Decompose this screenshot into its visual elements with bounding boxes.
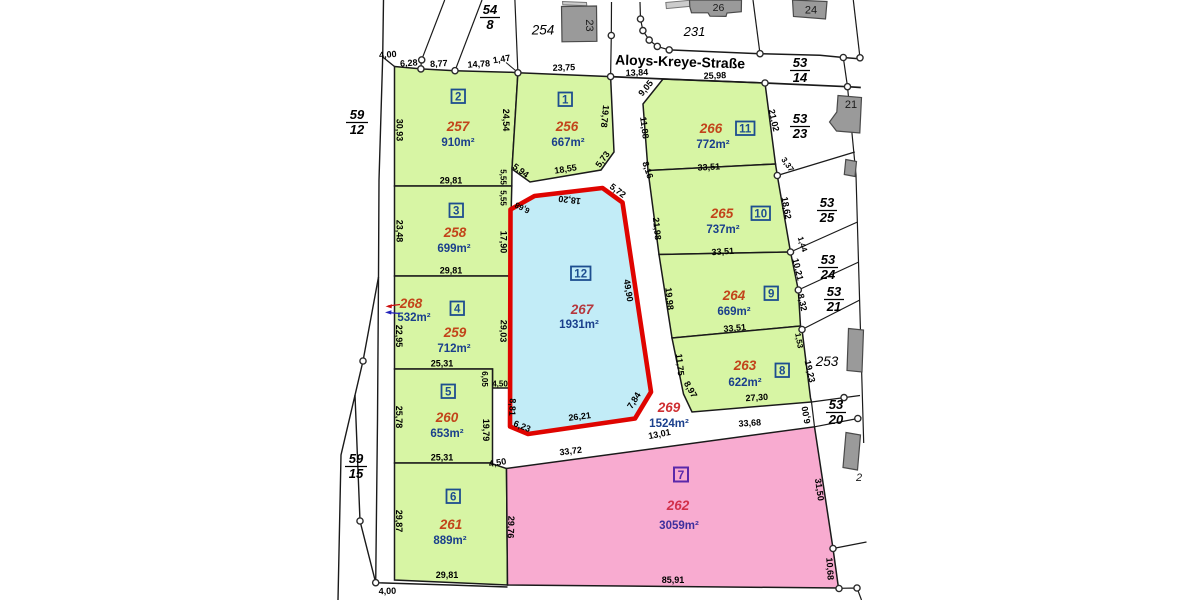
svg-text:12: 12: [350, 122, 365, 137]
svg-text:8: 8: [779, 366, 786, 378]
svg-text:264: 264: [722, 288, 746, 303]
svg-text:19,79: 19,79: [481, 419, 491, 442]
svg-text:910m²: 910m²: [441, 137, 474, 149]
svg-text:53: 53: [821, 252, 836, 267]
svg-text:669m²: 669m²: [717, 306, 750, 318]
svg-text:30,93: 30,93: [395, 119, 405, 142]
svg-text:24: 24: [820, 267, 836, 282]
svg-text:5,55: 5,55: [499, 190, 508, 206]
svg-text:54: 54: [483, 2, 498, 17]
svg-text:33,51: 33,51: [723, 322, 746, 334]
svg-text:4,00: 4,00: [378, 586, 396, 597]
svg-text:29,81: 29,81: [440, 266, 463, 276]
svg-text:3059m²: 3059m²: [659, 520, 699, 532]
svg-text:10,68: 10,68: [824, 557, 836, 580]
svg-text:712m²: 712m²: [437, 343, 470, 355]
svg-text:254: 254: [531, 23, 555, 38]
svg-text:10: 10: [754, 209, 767, 221]
svg-text:23,75: 23,75: [552, 62, 575, 73]
svg-text:15: 15: [349, 466, 364, 481]
svg-text:2: 2: [855, 472, 862, 484]
svg-text:6,05: 6,05: [480, 371, 489, 387]
svg-text:3: 3: [453, 206, 459, 218]
svg-text:22,95: 22,95: [394, 325, 404, 348]
svg-text:231: 231: [683, 24, 706, 39]
svg-text:26: 26: [713, 2, 725, 14]
svg-text:25,78: 25,78: [394, 406, 404, 429]
svg-text:259: 259: [443, 325, 467, 340]
svg-text:9: 9: [768, 289, 774, 301]
svg-text:21: 21: [826, 299, 841, 314]
svg-text:12: 12: [574, 269, 587, 281]
svg-text:53: 53: [793, 111, 808, 126]
svg-text:889m²: 889m²: [433, 535, 466, 547]
svg-text:266: 266: [699, 121, 723, 136]
svg-text:33,51: 33,51: [697, 161, 720, 172]
svg-text:17,90: 17,90: [499, 231, 509, 254]
svg-text:27,30: 27,30: [745, 392, 768, 404]
svg-text:262: 262: [666, 498, 690, 513]
svg-text:53: 53: [820, 195, 835, 210]
svg-text:257: 257: [446, 119, 471, 134]
svg-text:11: 11: [739, 124, 752, 136]
svg-text:699m²: 699m²: [437, 243, 470, 255]
svg-text:29,87: 29,87: [394, 510, 404, 533]
svg-text:8,77: 8,77: [430, 58, 448, 69]
svg-text:737m²: 737m²: [706, 224, 739, 236]
svg-text:21: 21: [845, 99, 857, 111]
svg-text:268: 268: [399, 296, 423, 311]
svg-text:5,55: 5,55: [499, 169, 508, 185]
svg-text:265: 265: [710, 206, 734, 221]
svg-text:6,28: 6,28: [400, 57, 418, 68]
svg-text:2: 2: [455, 92, 461, 104]
svg-text:6: 6: [450, 492, 456, 504]
svg-text:4: 4: [454, 304, 461, 316]
svg-text:14: 14: [793, 70, 808, 85]
svg-text:653m²: 653m²: [430, 428, 463, 440]
svg-text:267: 267: [570, 302, 595, 317]
svg-text:20: 20: [828, 412, 844, 427]
svg-text:5: 5: [445, 387, 452, 399]
svg-text:7: 7: [678, 468, 685, 482]
svg-text:260: 260: [435, 410, 459, 425]
svg-text:23: 23: [792, 126, 808, 141]
svg-text:59: 59: [349, 451, 364, 466]
svg-text:29,76: 29,76: [506, 516, 517, 539]
svg-text:33,51: 33,51: [711, 246, 734, 258]
svg-text:25: 25: [819, 210, 835, 225]
svg-text:261: 261: [439, 517, 463, 532]
svg-text:4,50: 4,50: [492, 380, 508, 389]
svg-text:25,31: 25,31: [431, 359, 454, 369]
svg-text:33,68: 33,68: [738, 417, 761, 429]
svg-text:25,31: 25,31: [431, 453, 454, 463]
svg-text:667m²: 667m²: [551, 137, 584, 149]
svg-text:24,54: 24,54: [501, 109, 511, 132]
svg-text:622m²: 622m²: [728, 377, 761, 389]
svg-text:14,78: 14,78: [467, 58, 490, 70]
svg-text:23,48: 23,48: [395, 220, 405, 243]
svg-text:8: 8: [486, 17, 494, 32]
svg-text:23: 23: [583, 19, 595, 31]
svg-text:772m²: 772m²: [696, 139, 729, 151]
svg-text:85,91: 85,91: [662, 575, 685, 585]
svg-text:8,81: 8,81: [507, 398, 518, 416]
svg-text:532m²: 532m²: [397, 312, 430, 324]
svg-text:59: 59: [350, 107, 365, 122]
svg-text:29,81: 29,81: [440, 176, 463, 186]
svg-text:25,98: 25,98: [703, 70, 726, 81]
svg-text:1524m²: 1524m²: [649, 418, 689, 430]
svg-text:1: 1: [562, 95, 569, 107]
svg-text:256: 256: [555, 119, 579, 134]
svg-text:53: 53: [827, 284, 842, 299]
svg-text:1931m²: 1931m²: [559, 319, 599, 331]
svg-text:253: 253: [815, 354, 839, 369]
svg-text:53: 53: [829, 397, 844, 412]
svg-text:24: 24: [805, 5, 817, 17]
svg-text:13,84: 13,84: [625, 67, 648, 78]
svg-text:29,81: 29,81: [436, 570, 459, 580]
svg-text:29,03: 29,03: [498, 320, 508, 343]
svg-text:53: 53: [793, 55, 808, 70]
svg-text:269: 269: [657, 400, 681, 415]
svg-text:263: 263: [733, 358, 757, 373]
svg-text:258: 258: [443, 225, 467, 240]
svg-text:4,00: 4,00: [379, 49, 397, 60]
